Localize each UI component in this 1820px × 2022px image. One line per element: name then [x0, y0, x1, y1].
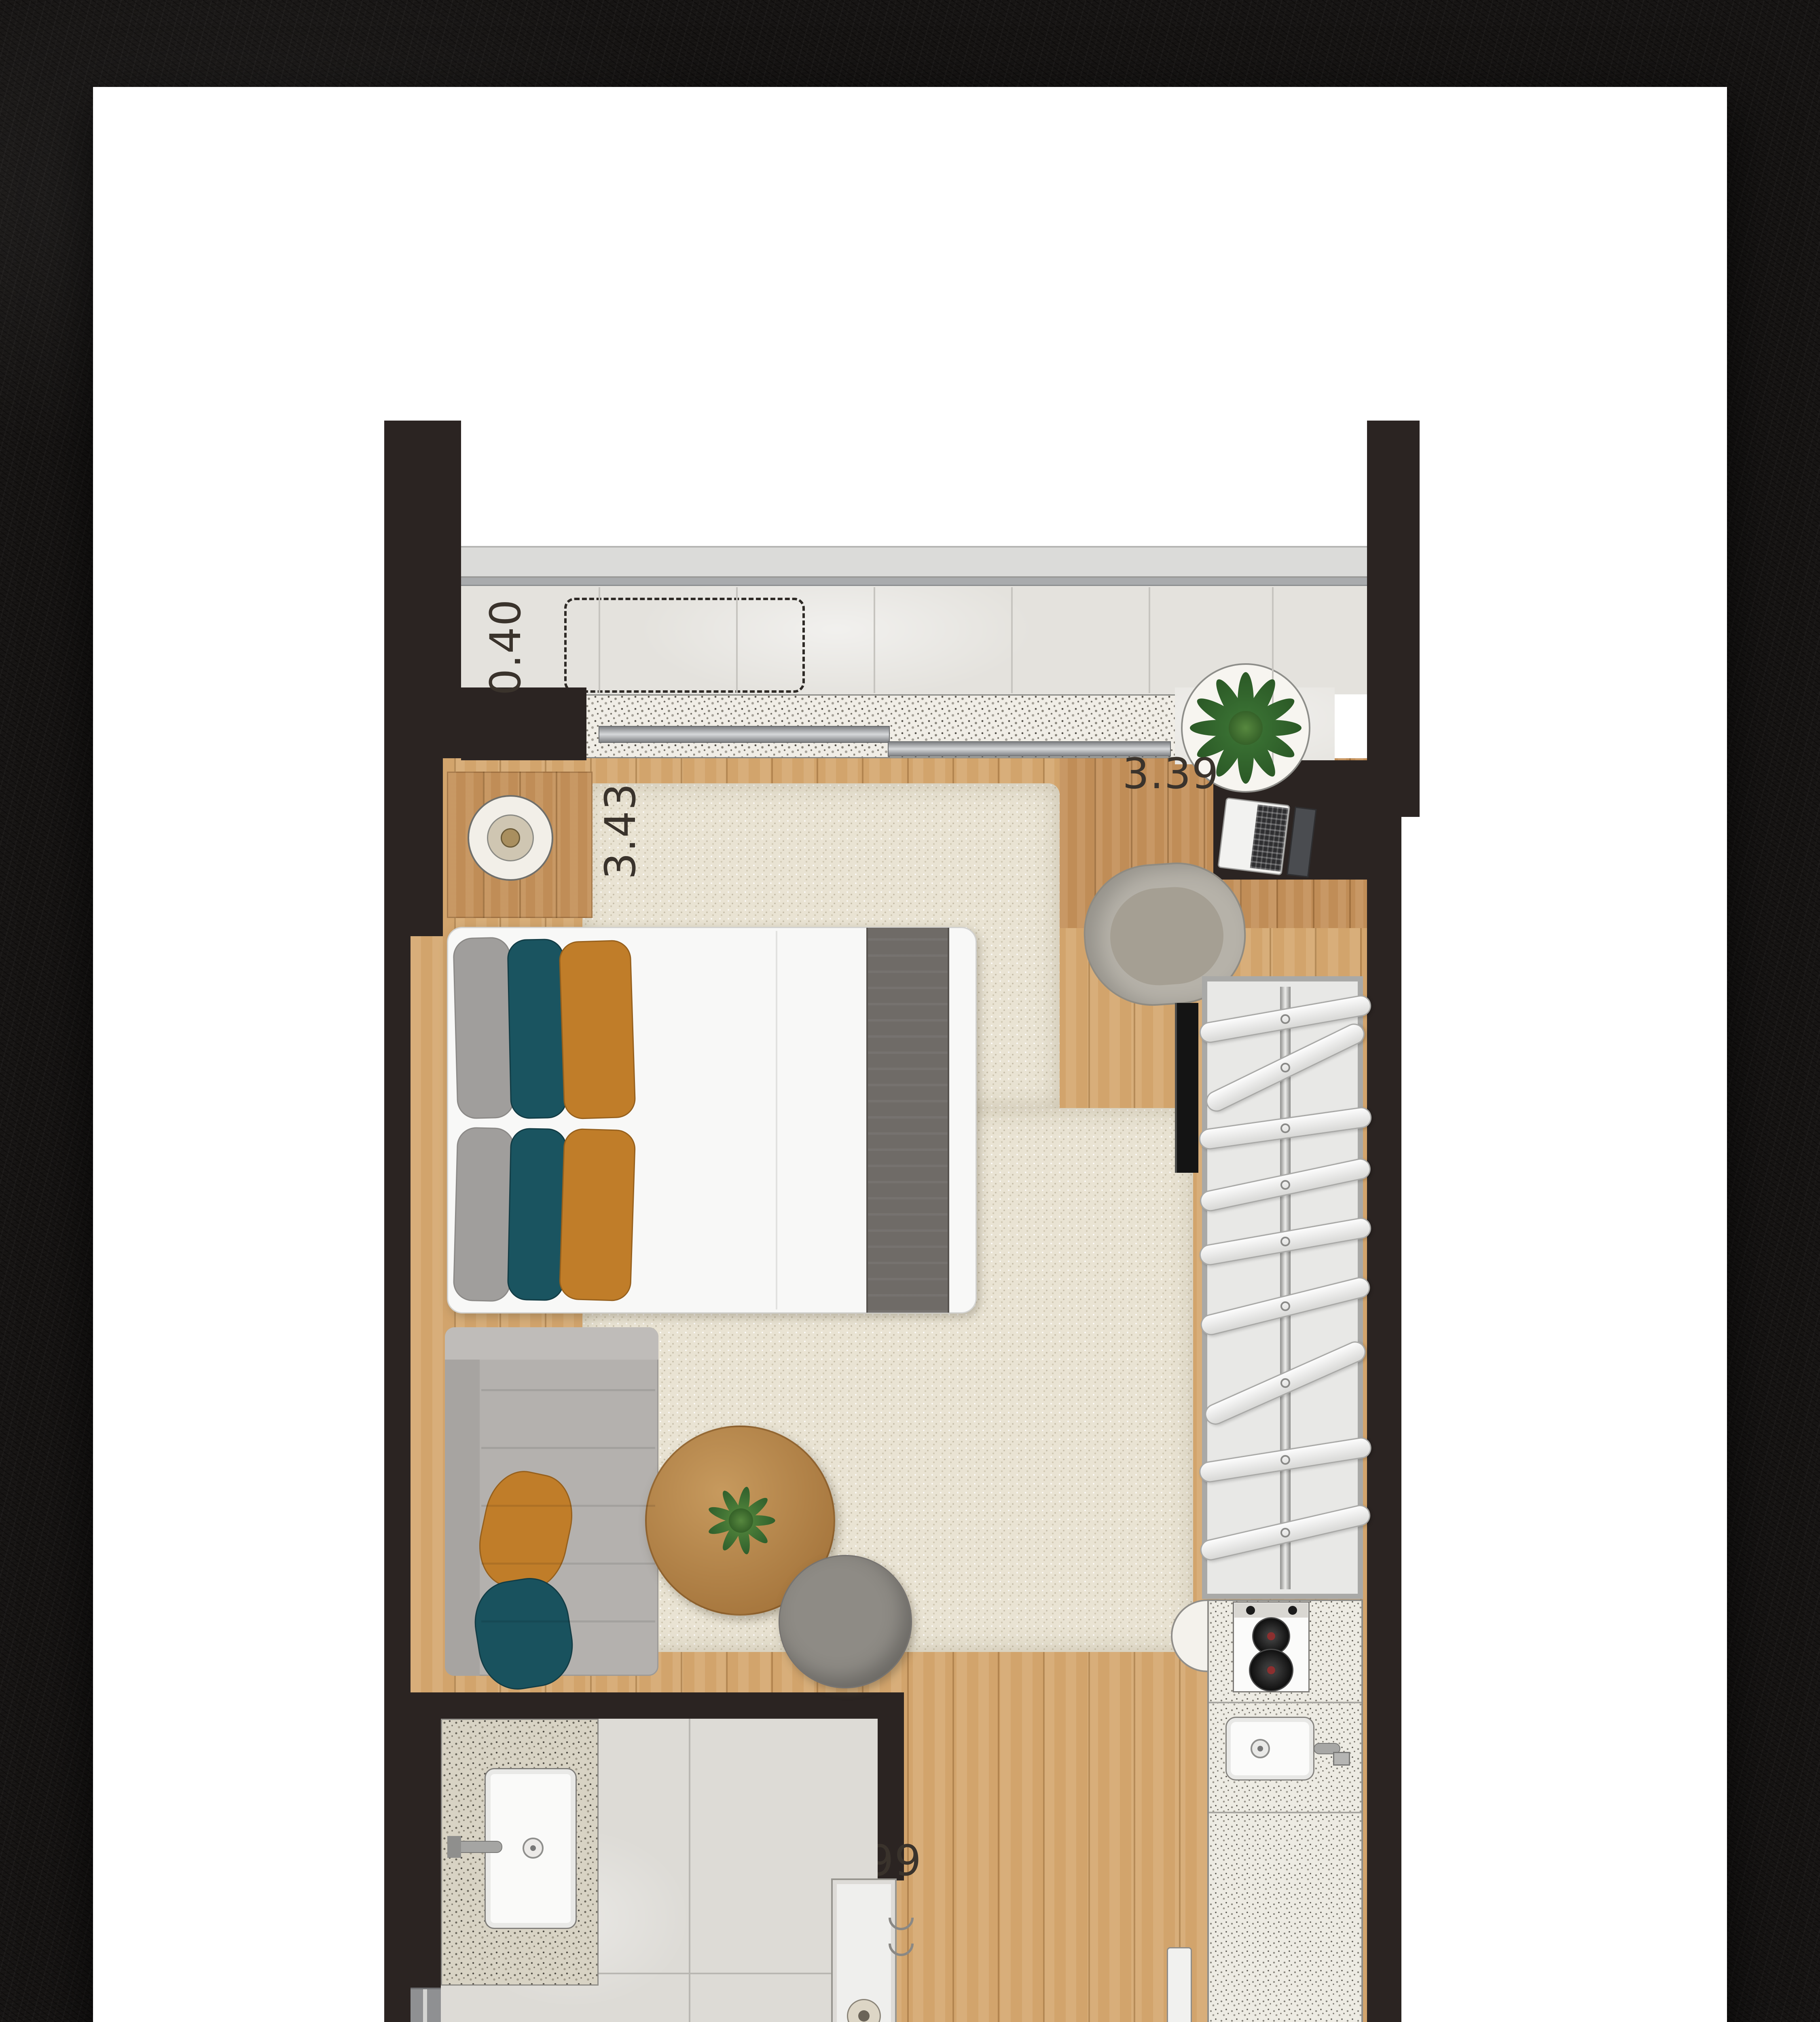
sofa-cushion-seam: [481, 1620, 655, 1622]
hanger-hook: [1280, 1237, 1290, 1246]
balcony-tile-joint: [1011, 587, 1013, 693]
hanger-hook: [1280, 1123, 1290, 1133]
balcony-tile-joint: [1149, 587, 1150, 693]
sofa-cushion-seam: [481, 1563, 655, 1565]
sofa-cushion-seam: [481, 1447, 655, 1449]
door-swing-arcs: [0, 0, 1820, 2022]
hanger-hook: [1280, 1528, 1290, 1538]
hanger-hook: [1280, 1455, 1290, 1465]
hanger-hook: [1280, 1063, 1290, 1072]
hanger-hook: [1280, 1014, 1290, 1024]
hanger-hook: [1280, 1180, 1290, 1190]
balcony-tile-joint: [874, 587, 875, 693]
sofa-cushion-seam: [481, 1389, 655, 1391]
hanger-hook: [1280, 1301, 1290, 1311]
balcony-tile-joint: [736, 587, 738, 693]
plant-core: [1229, 711, 1263, 745]
plant-core: [729, 1508, 753, 1533]
poster-background: 0.40 3.43 3.39 1.30 1.99 2.37 5.91: [0, 0, 1820, 2022]
balcony-tile-joint: [599, 587, 600, 693]
floor-plan: 0.40 3.43 3.39 1.30 1.99 2.37 5.91: [0, 0, 1820, 2022]
sofa-cushion-seam: [481, 1505, 655, 1507]
hanger-hook: [1280, 1378, 1290, 1388]
